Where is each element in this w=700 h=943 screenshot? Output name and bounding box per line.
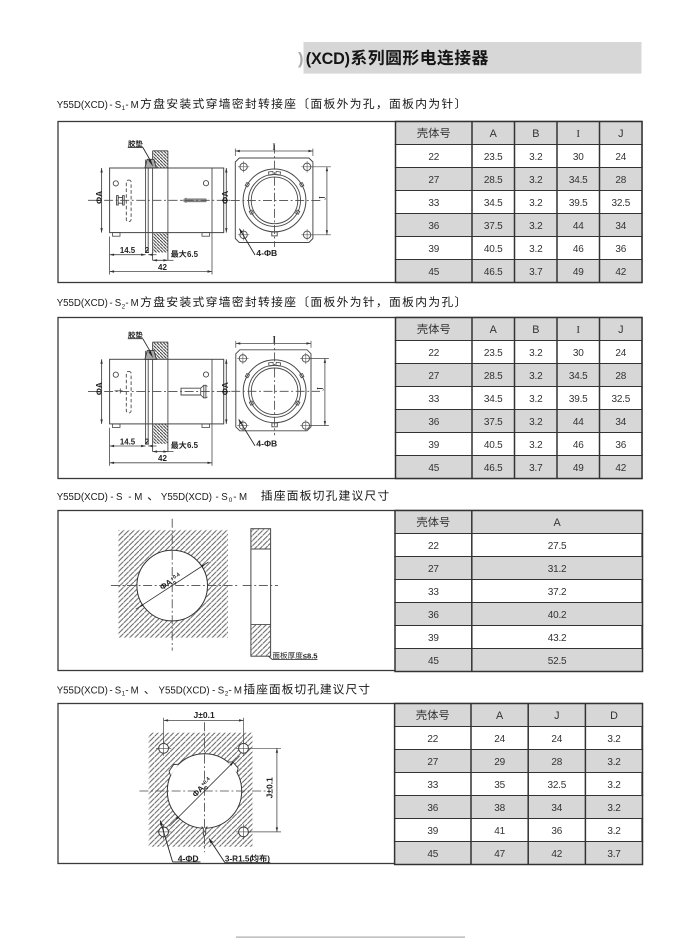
svg-text:37.5: 37.5: [484, 221, 503, 232]
svg-text:3.7: 3.7: [607, 849, 621, 860]
svg-text:45: 45: [428, 463, 439, 474]
svg-text:-: -: [109, 100, 112, 111]
svg-text:24: 24: [551, 734, 562, 745]
svg-text:33: 33: [428, 198, 439, 209]
svg-text:24: 24: [494, 734, 505, 745]
svg-text:49: 49: [573, 267, 584, 278]
svg-text:3.2: 3.2: [529, 198, 543, 209]
svg-text:39: 39: [428, 440, 439, 451]
svg-text:36: 36: [615, 244, 626, 255]
svg-text:24: 24: [615, 152, 626, 163]
svg-text:ΦA: ΦA: [94, 382, 104, 395]
svg-text:34.5: 34.5: [569, 175, 588, 186]
svg-text:Y55D(XCD): Y55D(XCD): [57, 298, 108, 309]
svg-text:39: 39: [428, 633, 439, 644]
svg-text:32.5: 32.5: [547, 780, 566, 791]
svg-text:3.2: 3.2: [607, 757, 621, 768]
svg-text:-: -: [229, 686, 232, 697]
svg-text:): ): [298, 50, 304, 68]
svg-text:J: J: [618, 324, 623, 336]
svg-text:28: 28: [615, 371, 626, 382]
svg-text:-: -: [125, 686, 128, 697]
svg-text:32.5: 32.5: [611, 198, 630, 209]
svg-text:I: I: [576, 324, 580, 336]
svg-text:49: 49: [573, 463, 584, 474]
svg-text:27: 27: [428, 371, 439, 382]
svg-text:M: M: [234, 686, 242, 697]
svg-text:2: 2: [145, 246, 150, 255]
svg-text:36: 36: [615, 440, 626, 451]
svg-text:33: 33: [428, 587, 439, 598]
svg-text:): ): [267, 854, 270, 863]
svg-text:38: 38: [494, 803, 505, 814]
svg-text:34.5: 34.5: [484, 198, 503, 209]
svg-text:46: 46: [573, 440, 584, 451]
svg-text:S: S: [218, 686, 225, 697]
svg-text:3.2: 3.2: [529, 244, 543, 255]
svg-text:27: 27: [428, 564, 439, 575]
svg-text:27: 27: [427, 757, 438, 768]
svg-text:41: 41: [494, 826, 505, 837]
svg-text:3.2: 3.2: [529, 175, 543, 186]
svg-text:31.2: 31.2: [548, 564, 567, 575]
svg-text:J: J: [319, 196, 329, 200]
svg-text:28: 28: [615, 175, 626, 186]
svg-text:I: I: [273, 336, 276, 346]
svg-text:36: 36: [428, 417, 439, 428]
svg-text:39.5: 39.5: [569, 394, 588, 405]
svg-text:23.5: 23.5: [484, 152, 503, 163]
svg-text:22: 22: [428, 541, 439, 552]
svg-text:36: 36: [427, 803, 438, 814]
svg-text:23.5: 23.5: [484, 348, 503, 359]
svg-text:40.5: 40.5: [484, 440, 503, 451]
svg-text:22: 22: [428, 348, 439, 359]
svg-text:M: M: [134, 492, 142, 503]
svg-text:30: 30: [573, 348, 584, 359]
svg-text:52.5: 52.5: [548, 656, 567, 667]
svg-text:3.2: 3.2: [607, 803, 621, 814]
svg-text:44: 44: [573, 417, 584, 428]
svg-text:3.2: 3.2: [529, 371, 543, 382]
svg-text:44: 44: [573, 221, 584, 232]
svg-text:28.5: 28.5: [484, 371, 503, 382]
svg-text:46.5: 46.5: [484, 463, 503, 474]
svg-text:≤8.5: ≤8.5: [303, 651, 319, 660]
svg-text:S: S: [221, 492, 228, 503]
svg-text:42: 42: [551, 849, 562, 860]
svg-text:32.5: 32.5: [611, 394, 630, 405]
svg-text:34.5: 34.5: [484, 394, 503, 405]
svg-text:42: 42: [158, 263, 167, 272]
svg-text:3.2: 3.2: [607, 826, 621, 837]
svg-text:Y55D(XCD): Y55D(XCD): [159, 686, 210, 697]
svg-text:14.5: 14.5: [120, 437, 136, 446]
svg-text:24: 24: [615, 348, 626, 359]
svg-text:ΦA: ΦA: [220, 382, 230, 395]
svg-text:45: 45: [428, 656, 439, 667]
svg-text:27.5: 27.5: [548, 541, 567, 552]
svg-text:M: M: [131, 100, 139, 111]
svg-text:Y55D(XCD): Y55D(XCD): [57, 686, 108, 697]
svg-text:S: S: [116, 492, 123, 503]
svg-text:-: -: [110, 492, 113, 503]
svg-text:40.5: 40.5: [484, 244, 503, 255]
svg-text:A: A: [490, 324, 498, 336]
svg-text:M: M: [131, 686, 139, 697]
svg-text:3.2: 3.2: [607, 780, 621, 791]
svg-text:3.2: 3.2: [529, 152, 543, 163]
svg-text:37.2: 37.2: [548, 587, 567, 598]
svg-text:47: 47: [494, 849, 505, 860]
svg-text:J±0.1: J±0.1: [265, 777, 275, 798]
svg-text:I: I: [576, 128, 580, 140]
svg-text:30: 30: [573, 152, 584, 163]
svg-text:-: -: [233, 492, 236, 503]
svg-text:36: 36: [428, 610, 439, 621]
svg-text:28.5: 28.5: [484, 175, 503, 186]
svg-text:3.7: 3.7: [529, 463, 543, 474]
svg-text:45: 45: [427, 849, 438, 860]
svg-text:A: A: [496, 710, 504, 722]
svg-text:J: J: [618, 128, 623, 140]
svg-text:3.2: 3.2: [529, 417, 543, 428]
svg-text:-: -: [109, 298, 112, 309]
svg-text:22: 22: [428, 152, 439, 163]
svg-text:40.2: 40.2: [548, 610, 567, 621]
svg-text:42: 42: [158, 454, 167, 463]
svg-text:4-ΦB: 4-ΦB: [256, 248, 277, 258]
svg-text:42: 42: [615, 267, 626, 278]
svg-text:39.5: 39.5: [569, 198, 588, 209]
svg-text:(XCD): (XCD): [306, 50, 350, 68]
svg-text:6.5: 6.5: [187, 441, 199, 450]
svg-text:39: 39: [428, 244, 439, 255]
svg-text:D: D: [610, 710, 618, 722]
svg-text:34: 34: [615, 417, 626, 428]
svg-text:28: 28: [551, 757, 562, 768]
svg-text:J: J: [554, 710, 559, 722]
svg-text:0: 0: [229, 497, 233, 504]
svg-text:33: 33: [428, 394, 439, 405]
svg-text:43.2: 43.2: [548, 633, 567, 644]
svg-text:A: A: [490, 128, 498, 140]
svg-text:14.5: 14.5: [120, 246, 136, 255]
svg-text:34: 34: [615, 221, 626, 232]
svg-text:34: 34: [551, 803, 562, 814]
svg-text:42: 42: [615, 463, 626, 474]
svg-text:36: 36: [428, 221, 439, 232]
svg-text:-: -: [216, 492, 219, 503]
svg-text:Y55D(XCD): Y55D(XCD): [161, 492, 212, 503]
svg-text:B: B: [532, 324, 539, 336]
svg-text:B: B: [532, 128, 539, 140]
svg-text:3.7: 3.7: [529, 267, 543, 278]
svg-text:-: -: [125, 100, 128, 111]
svg-text:I: I: [272, 143, 275, 153]
svg-text:6.5: 6.5: [187, 250, 199, 259]
svg-text:37.5: 37.5: [484, 417, 503, 428]
svg-text:27: 27: [428, 175, 439, 186]
svg-text:2: 2: [145, 437, 150, 446]
svg-text:22: 22: [427, 734, 438, 745]
svg-text:35: 35: [494, 780, 505, 791]
svg-text:Y55D(XCD): Y55D(XCD): [57, 492, 108, 503]
svg-text:-: -: [125, 298, 128, 309]
svg-text:ΦA: ΦA: [220, 191, 230, 204]
svg-text:45: 45: [428, 267, 439, 278]
svg-text:J: J: [317, 387, 327, 391]
svg-text:34.5: 34.5: [569, 371, 588, 382]
svg-text:M: M: [131, 298, 139, 309]
svg-text:Y55D(XCD): Y55D(XCD): [57, 100, 108, 111]
svg-text:46.5: 46.5: [484, 267, 503, 278]
svg-text:29: 29: [494, 757, 505, 768]
svg-text:3.2: 3.2: [529, 221, 543, 232]
svg-text:A: A: [553, 517, 561, 529]
svg-text:4-ΦB: 4-ΦB: [256, 439, 277, 449]
svg-text:3.2: 3.2: [529, 348, 543, 359]
svg-text:3.2: 3.2: [607, 734, 621, 745]
svg-text:39: 39: [427, 826, 438, 837]
svg-text:3.2: 3.2: [529, 440, 543, 451]
svg-text:J±0.1: J±0.1: [194, 710, 215, 720]
svg-text:36: 36: [551, 826, 562, 837]
svg-text:-: -: [212, 686, 215, 697]
svg-text:33: 33: [427, 780, 438, 791]
svg-text:-: -: [109, 686, 112, 697]
svg-text:3.2: 3.2: [529, 394, 543, 405]
svg-text:46: 46: [573, 244, 584, 255]
svg-text:ΦA: ΦA: [94, 191, 104, 204]
svg-text:-: -: [128, 492, 131, 503]
svg-text:3-R1.5(: 3-R1.5(: [225, 854, 253, 863]
svg-text:M: M: [239, 492, 247, 503]
